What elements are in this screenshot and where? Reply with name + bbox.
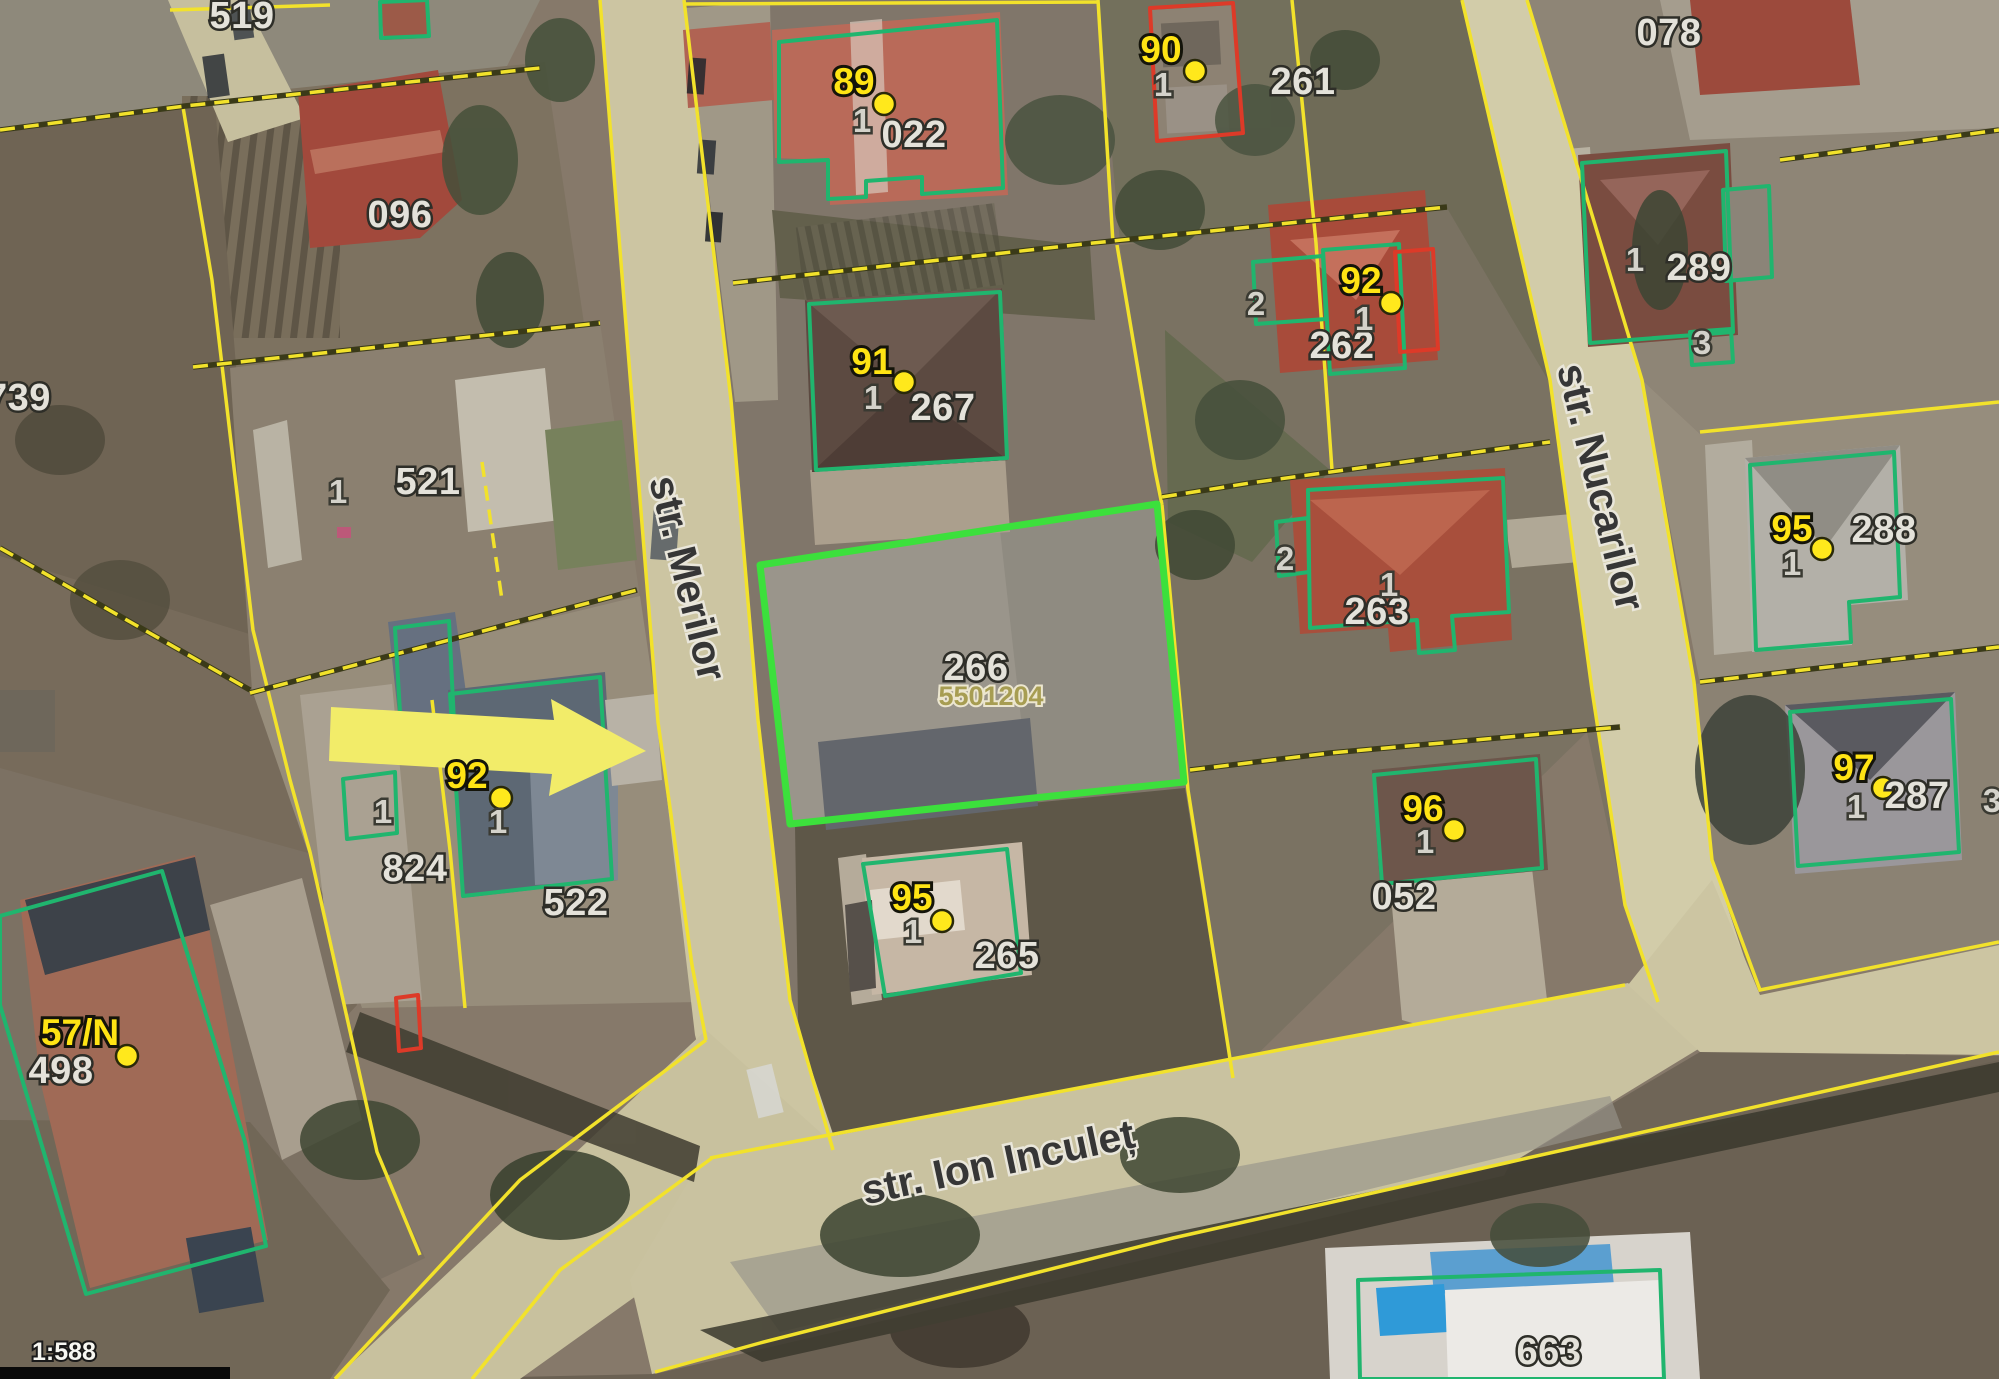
building-roof: [186, 1227, 264, 1313]
parcel-label-265: 265: [975, 935, 1040, 977]
address-label-91: 91: [851, 341, 892, 382]
unit-label: 1: [853, 102, 871, 139]
address-label-57N: 57/N: [41, 1012, 119, 1053]
tree: [525, 18, 595, 102]
parcel-label-288: 288: [1852, 509, 1917, 551]
unit-label: 1: [1626, 241, 1644, 278]
tree: [1005, 95, 1115, 185]
parcel-label-824: 824: [383, 848, 448, 890]
parcel-label-096: 096: [368, 194, 433, 236]
tree: [442, 105, 518, 215]
pool: [1376, 1284, 1448, 1336]
terrain-patch: [0, 690, 55, 752]
tree: [1490, 1203, 1590, 1267]
scale-label: 1:588: [32, 1338, 96, 1366]
unit-label: 1: [489, 803, 507, 840]
parcel-label-498: 498: [29, 1050, 94, 1092]
terrain-patch: [455, 368, 560, 532]
address-point-dot[interactable]: [1380, 292, 1402, 314]
parcel-label-052: 052: [1372, 876, 1437, 918]
unit-label: 1: [374, 793, 392, 830]
unit-label: 2: [1247, 285, 1265, 322]
unit-label: 1: [1154, 66, 1172, 103]
address-label-90: 90: [1140, 29, 1181, 70]
parcel-label-263: 263: [1345, 591, 1410, 633]
parcel-label-522: 522: [544, 882, 609, 924]
parcel-label-261: 261: [1271, 61, 1336, 103]
unit-label: 3: [1693, 324, 1711, 361]
address-label-95-east: 95: [1771, 508, 1812, 549]
parcel-label-519: 519: [210, 0, 275, 37]
address-point-dot[interactable]: [931, 910, 953, 932]
parcel-label-289: 289: [1667, 247, 1732, 289]
address-label-92-east: 92: [1340, 260, 1381, 301]
address-label-97: 97: [1833, 747, 1874, 788]
unit-label: 1: [1416, 823, 1434, 860]
tree: [70, 560, 170, 640]
scale-bar: [0, 1367, 230, 1379]
address-label-92-west: 92: [446, 755, 487, 796]
address-point-dot[interactable]: [1184, 60, 1206, 82]
pink-object: [337, 527, 351, 538]
unit-label: 1: [904, 913, 922, 950]
parcel-label-022: 022: [882, 114, 947, 156]
tree: [1195, 380, 1285, 460]
tree: [490, 1150, 630, 1240]
unit-label: 1: [1355, 300, 1373, 337]
address-point-dot[interactable]: [1811, 538, 1833, 560]
unit-label: 3: [1983, 782, 1999, 819]
building-roof: [1690, 0, 1860, 95]
unit-label: 1: [1380, 566, 1398, 603]
parcel-label-739: 739: [0, 377, 51, 419]
unit-label: 1: [1847, 788, 1865, 825]
map-canvas[interactable]: 519 096 739 521 022 261 078 289 267 262 …: [0, 0, 1999, 1379]
terrain-patch: [0, 104, 258, 640]
terrain-patch: [545, 420, 637, 570]
unit-label: 1: [1783, 545, 1801, 582]
address-point-dot[interactable]: [116, 1045, 138, 1067]
parcel-label-521: 521: [396, 461, 461, 503]
building-roof: [380, 0, 430, 40]
address-point-dot[interactable]: [1443, 819, 1465, 841]
unit-label: 1: [329, 473, 347, 510]
unit-label: 1: [864, 379, 882, 416]
tree: [300, 1100, 420, 1180]
address-label-89: 89: [833, 61, 874, 102]
map-viewport[interactable]: 519 096 739 521 022 261 078 289 267 262 …: [0, 0, 1999, 1379]
address-point-dot[interactable]: [873, 93, 895, 115]
parcel-label-287: 287: [1885, 775, 1950, 817]
parcel-label-078: 078: [1637, 12, 1702, 54]
parcel-line: [684, 2, 1098, 4]
address-label-95-south: 95: [891, 877, 932, 918]
parcel-code-5501204: 5501204: [938, 681, 1043, 711]
unit-label: 2: [1276, 540, 1294, 577]
parcel-label-663: 663: [1517, 1331, 1582, 1373]
parcel-label-267: 267: [911, 387, 976, 429]
